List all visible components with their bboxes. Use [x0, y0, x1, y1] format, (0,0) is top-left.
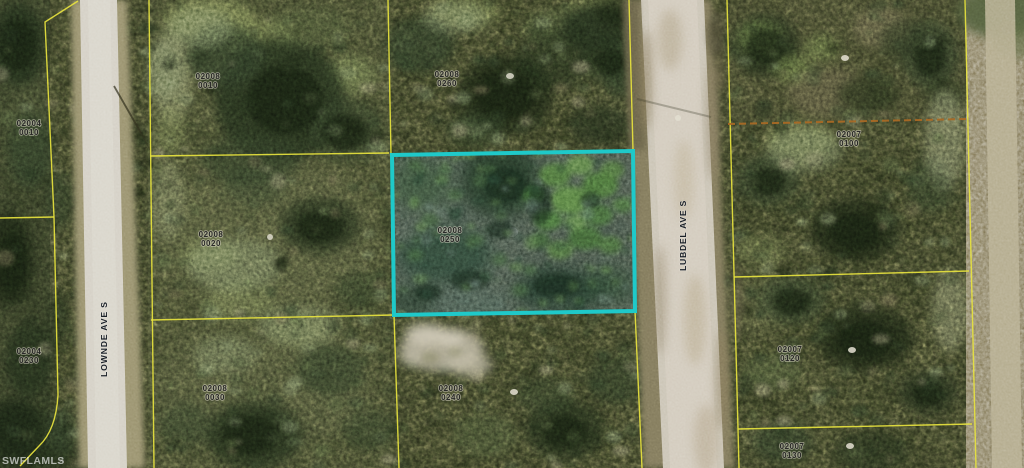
svg-text:SWFLAMLS: SWFLAMLS: [2, 455, 65, 467]
svg-text:02008: 02008: [438, 226, 463, 235]
svg-text:LOWNDE AVE S: LOWNDE AVE S: [99, 301, 109, 377]
svg-text:0240: 0240: [441, 393, 461, 402]
svg-text:02008: 02008: [196, 72, 221, 81]
svg-text:02008: 02008: [439, 384, 464, 393]
svg-text:02008: 02008: [435, 70, 460, 79]
svg-text:↗: ↗: [57, 456, 65, 466]
svg-text:02007: 02007: [837, 130, 862, 139]
svg-text:02007: 02007: [778, 345, 803, 354]
svg-text:02007: 02007: [780, 442, 805, 451]
svg-text:02004: 02004: [17, 347, 42, 356]
svg-text:0260: 0260: [437, 79, 457, 88]
svg-text:0230: 0230: [19, 356, 39, 365]
svg-text:0120: 0120: [780, 354, 800, 363]
svg-text:02008: 02008: [203, 384, 228, 393]
svg-text:02004: 02004: [17, 119, 42, 128]
svg-text:0250: 0250: [440, 235, 460, 244]
svg-text:0130: 0130: [782, 451, 802, 460]
svg-text:0030: 0030: [205, 393, 225, 402]
svg-text:0020: 0020: [201, 239, 221, 248]
svg-text:0010: 0010: [198, 81, 218, 90]
svg-text:0100: 0100: [839, 139, 859, 148]
svg-text:LUBDEL AVE S: LUBDEL AVE S: [678, 200, 688, 271]
svg-text:0010: 0010: [19, 128, 39, 137]
svg-text:02008: 02008: [199, 230, 224, 239]
